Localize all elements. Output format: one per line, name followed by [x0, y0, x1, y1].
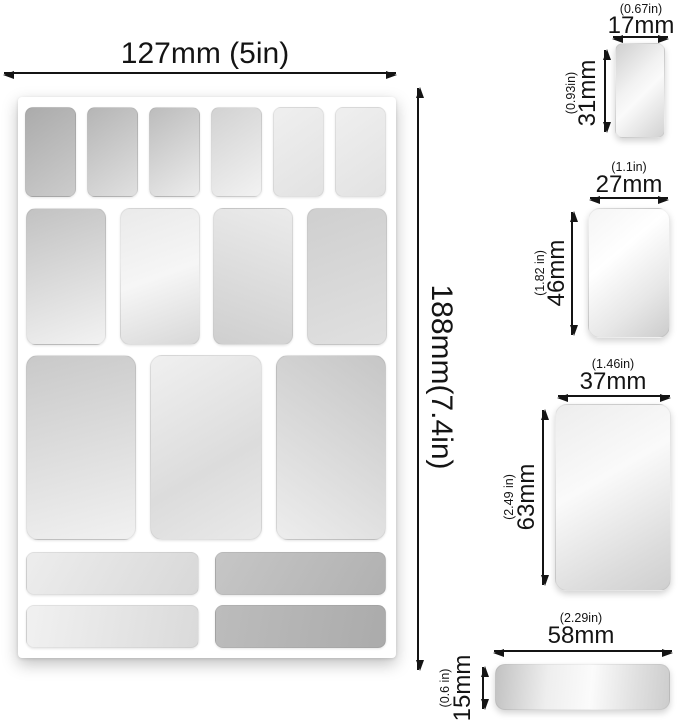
mirror-sticker-large: [26, 355, 136, 540]
arrowhead-left-icon: [493, 649, 504, 657]
mirror-piece-large: [555, 404, 671, 591]
sheet-width-arrow: [4, 72, 396, 74]
piece-small-height-mm-label: 31mm: [576, 60, 600, 127]
arrowhead-down-icon: [570, 325, 578, 336]
piece-medium-height-inch-label: (1.82 in): [534, 250, 547, 296]
product-dimension-diagram: 127mm (5in) 188mm(7.4in) (0.67in) 17mm 3…: [0, 0, 679, 721]
piece-medium-height-arrow: [571, 212, 573, 335]
sheet-height-arrow: [417, 88, 419, 670]
piece-large-height-mm-label: 63mm: [515, 464, 539, 531]
mirror-piece-strip: [495, 664, 670, 710]
arrowhead-down-icon: [603, 122, 611, 133]
arrowhead-down-icon: [541, 575, 549, 586]
piece-strip-width-arrow: [494, 650, 672, 652]
mirror-sticker-medium: [26, 208, 106, 345]
piece-large-height-inch-label: (2.49 in): [503, 474, 516, 520]
mirror-sticker-strip: [215, 552, 386, 595]
arrowhead-left-icon: [612, 35, 623, 43]
piece-large-height-arrow: [542, 410, 544, 585]
piece-large-width-arrow: [558, 395, 670, 397]
piece-strip-height-mm-label: 15mm: [451, 655, 475, 721]
piece-strip-width-mm-label: 58mm: [521, 623, 641, 648]
arrowhead-right-icon: [662, 649, 673, 657]
mirror-sticker-small: [25, 107, 76, 197]
arrowhead-right-icon: [660, 394, 671, 402]
mirror-sticker-strip: [215, 605, 386, 648]
arrowhead-right-icon: [386, 71, 397, 79]
mirror-sticker-medium: [307, 208, 387, 345]
piece-strip-height-arrow: [482, 667, 484, 709]
arrowhead-down-icon: [416, 660, 424, 671]
arrowhead-left-icon: [557, 394, 568, 402]
mirror-sticker-small: [273, 107, 324, 197]
piece-strip-height-inch-label: (0.6 in): [439, 669, 452, 708]
piece-small-height-arrow: [604, 50, 606, 132]
mirror-piece-small: [615, 43, 665, 138]
mirror-piece-medium: [588, 208, 670, 338]
sticker-sheet: [18, 97, 396, 658]
piece-medium-width-mm-label: 27mm: [569, 172, 679, 197]
sheet-height-label: 188mm(7.4in): [426, 284, 456, 469]
arrowhead-up-icon: [541, 409, 549, 420]
arrowhead-up-icon: [416, 87, 424, 98]
mirror-sticker-strip: [26, 605, 199, 648]
arrowhead-left-icon: [589, 196, 600, 204]
arrowhead-left-icon: [3, 71, 14, 79]
sheet-width-label: 127mm (5in): [40, 38, 370, 70]
mirror-sticker-small: [211, 107, 262, 197]
arrowhead-right-icon: [658, 196, 669, 204]
piece-small-width-arrow: [613, 36, 668, 38]
mirror-sticker-medium: [213, 208, 293, 345]
arrowhead-up-icon: [603, 49, 611, 60]
arrowhead-right-icon: [658, 35, 669, 43]
piece-medium-width-arrow: [590, 197, 668, 199]
arrowhead-up-icon: [570, 211, 578, 222]
mirror-sticker-small: [335, 107, 386, 197]
mirror-sticker-large: [276, 355, 386, 540]
piece-small-height-inch-label: (0.93in): [565, 72, 578, 114]
mirror-sticker-strip: [26, 552, 199, 595]
arrowhead-down-icon: [481, 699, 489, 710]
arrowhead-up-icon: [481, 666, 489, 677]
mirror-sticker-small: [87, 107, 138, 197]
piece-large-width-mm-label: 37mm: [553, 369, 673, 394]
mirror-sticker-large: [150, 355, 262, 540]
piece-medium-height-mm-label: 46mm: [545, 240, 569, 307]
mirror-sticker-small: [149, 107, 200, 197]
mirror-sticker-medium: [120, 208, 200, 345]
